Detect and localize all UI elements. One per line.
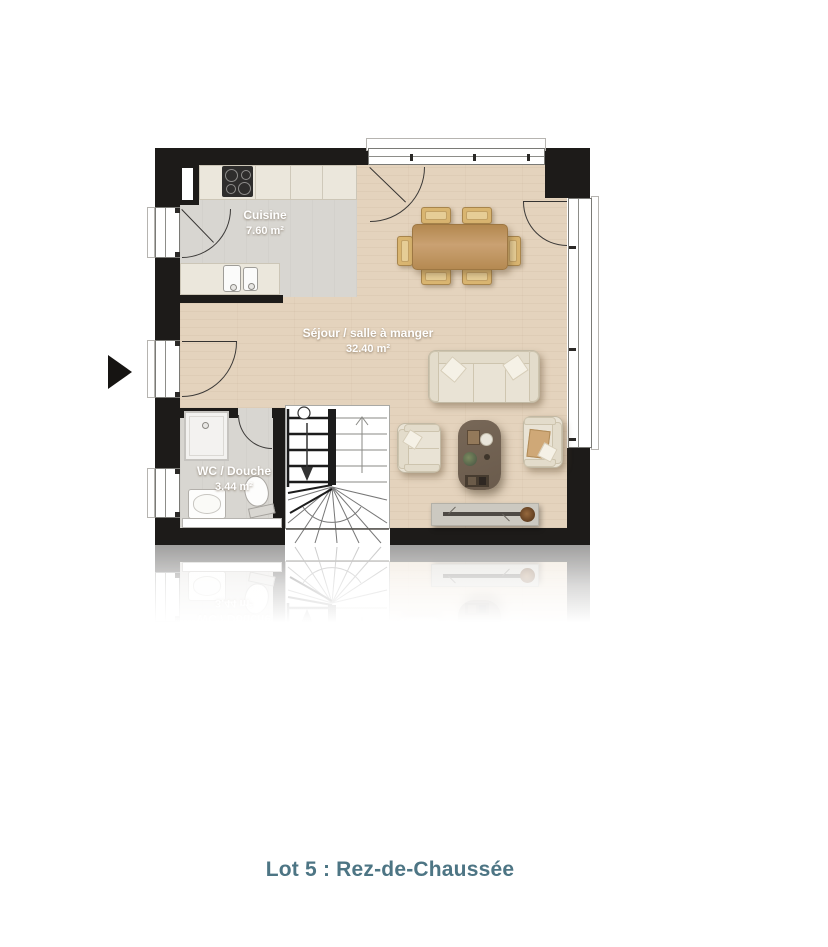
decor-tray	[465, 475, 489, 487]
wall-kitchen-divider	[180, 295, 283, 303]
counter-division	[290, 166, 291, 199]
loveseat	[397, 423, 441, 473]
counter-division	[255, 166, 256, 199]
burner-icon	[226, 184, 236, 194]
kitchen-cabinet-niche	[182, 168, 193, 200]
wall-top-right	[545, 148, 590, 198]
wc-name: WC / Douche	[184, 464, 284, 480]
window-mullion	[473, 154, 476, 161]
sofa	[428, 350, 540, 403]
decor-item	[484, 454, 490, 460]
right-window	[568, 198, 592, 448]
decor-box	[467, 430, 480, 445]
loveseat-armrest	[404, 464, 440, 472]
staircase	[285, 405, 390, 545]
dining-chair	[421, 207, 451, 224]
window-mullion	[569, 246, 576, 249]
window-jamb	[175, 512, 180, 517]
armchair-armrest	[524, 417, 556, 425]
armchair	[523, 416, 563, 468]
wall-left-3	[155, 398, 180, 468]
counter-division	[322, 166, 323, 199]
tv-foot	[502, 507, 517, 522]
wall-bottom-right	[390, 528, 590, 545]
kitchen-door-opening	[155, 207, 180, 258]
top-window	[368, 148, 545, 165]
wall-left-2	[155, 258, 180, 340]
seat-seam	[473, 364, 474, 402]
wall-left-1	[155, 148, 180, 207]
sink-basin	[243, 267, 258, 291]
kitchen-name: Cuisine	[215, 208, 315, 224]
sejour-door-opening	[155, 340, 180, 398]
floor-plan: Cuisine 7.60 m² Séjour / salle à manger …	[155, 138, 590, 545]
plan-reflection: Cuisine 7.60 m² Séjour / salle à manger …	[155, 545, 600, 629]
right-window-sill	[591, 196, 599, 450]
door-jamb	[175, 208, 180, 213]
page-title: Lot 5 : Rez-de-Chaussée	[0, 858, 780, 882]
decor-item	[479, 477, 486, 485]
shower-drain	[202, 422, 209, 429]
wc-area: 3.44 m²	[184, 480, 284, 494]
living-room-label: Séjour / salle à manger 32.40 m²	[288, 326, 448, 356]
window-mullion	[569, 438, 576, 441]
sink-drain	[248, 283, 255, 290]
decor-item	[468, 477, 476, 485]
kitchen-label: Cuisine 7.60 m²	[215, 208, 315, 238]
dining-table	[412, 224, 508, 270]
sink-drain	[230, 284, 237, 291]
decor-bowl	[480, 433, 493, 446]
wc-window-sill	[147, 468, 155, 518]
tv-stand	[431, 503, 539, 526]
door-jamb	[175, 252, 180, 257]
window-mullion	[410, 154, 413, 161]
terrace-door-leaf	[523, 201, 567, 202]
sofa-armrest	[429, 351, 439, 402]
dining-chair	[421, 268, 451, 285]
window-mullion	[527, 154, 530, 161]
kitchen-area: 7.60 m²	[215, 224, 315, 238]
burner-icon	[225, 169, 238, 182]
shower-tray	[184, 411, 229, 461]
armchair-back	[552, 422, 562, 464]
door-jamb	[175, 392, 180, 397]
door-jamb	[175, 341, 180, 346]
sejour-door-leaf	[182, 341, 237, 342]
sejour-door-sill	[147, 340, 155, 398]
burner-icon	[241, 170, 251, 180]
wc-window	[155, 468, 180, 518]
cooktop	[222, 166, 253, 197]
kitchen-door-sill	[147, 207, 155, 258]
burner-icon	[238, 182, 251, 195]
tv-foot	[448, 507, 463, 522]
plant-icon	[463, 452, 477, 466]
window-mullion	[569, 348, 576, 351]
living-room-area: 32.40 m²	[288, 342, 448, 356]
wall-bottom-left	[155, 528, 285, 545]
living-room-name: Séjour / salle à manger	[288, 326, 448, 342]
plant-pot-icon	[520, 507, 535, 522]
window-jamb	[175, 469, 180, 474]
sofa-armrest	[529, 351, 539, 402]
coffee-table	[458, 420, 501, 490]
entrance-arrow-icon	[108, 355, 132, 389]
wc-label: WC / Douche 3.44 m²	[184, 464, 284, 494]
dining-chair	[462, 207, 492, 224]
floor-plan-page: Cuisine 7.60 m² Séjour / salle à manger …	[0, 0, 828, 947]
dining-chair	[462, 268, 492, 285]
dining-chair	[397, 236, 413, 266]
sink-basin	[223, 265, 241, 292]
